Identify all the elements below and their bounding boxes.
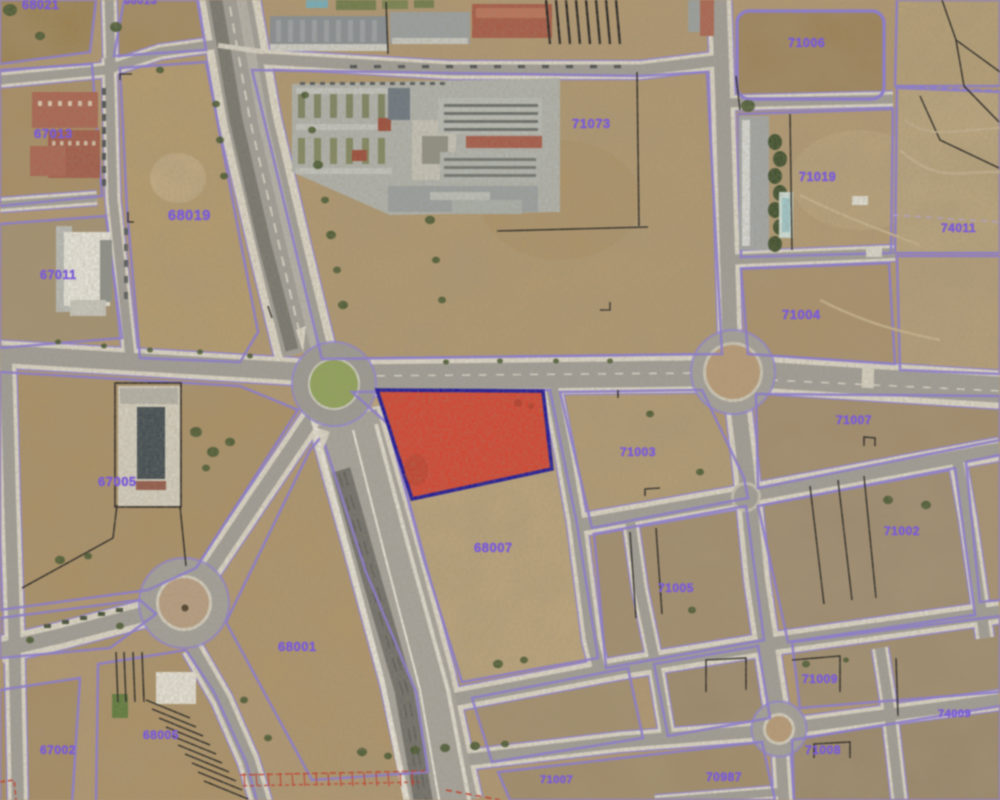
svg-text:67002: 67002 <box>40 743 76 757</box>
svg-text:71003: 71003 <box>620 445 656 459</box>
svg-text:67005: 67005 <box>98 474 137 489</box>
svg-text:71008: 71008 <box>805 743 841 757</box>
svg-text:68005: 68005 <box>143 728 179 742</box>
svg-text:68007: 68007 <box>474 540 513 555</box>
svg-text:70987: 70987 <box>706 770 742 784</box>
svg-text:68001: 68001 <box>278 639 317 654</box>
svg-text:74009: 74009 <box>938 708 971 720</box>
svg-text:71002: 71002 <box>884 524 920 538</box>
svg-text:71004: 71004 <box>782 307 821 322</box>
svg-text:74011: 74011 <box>941 221 976 235</box>
svg-text:71007: 71007 <box>836 413 872 427</box>
svg-text:67011: 67011 <box>40 268 77 282</box>
svg-text:71006: 71006 <box>788 36 825 50</box>
svg-text:71073: 71073 <box>572 116 611 131</box>
svg-text:68013: 68013 <box>124 0 157 7</box>
svg-text:71005: 71005 <box>658 581 694 595</box>
svg-text:71019: 71019 <box>799 170 836 184</box>
svg-text:68019: 68019 <box>168 208 211 224</box>
svg-text:68021: 68021 <box>22 0 59 12</box>
svg-text:71009: 71009 <box>802 672 838 686</box>
svg-text:67013: 67013 <box>34 126 73 141</box>
svg-text:71007: 71007 <box>540 774 573 786</box>
